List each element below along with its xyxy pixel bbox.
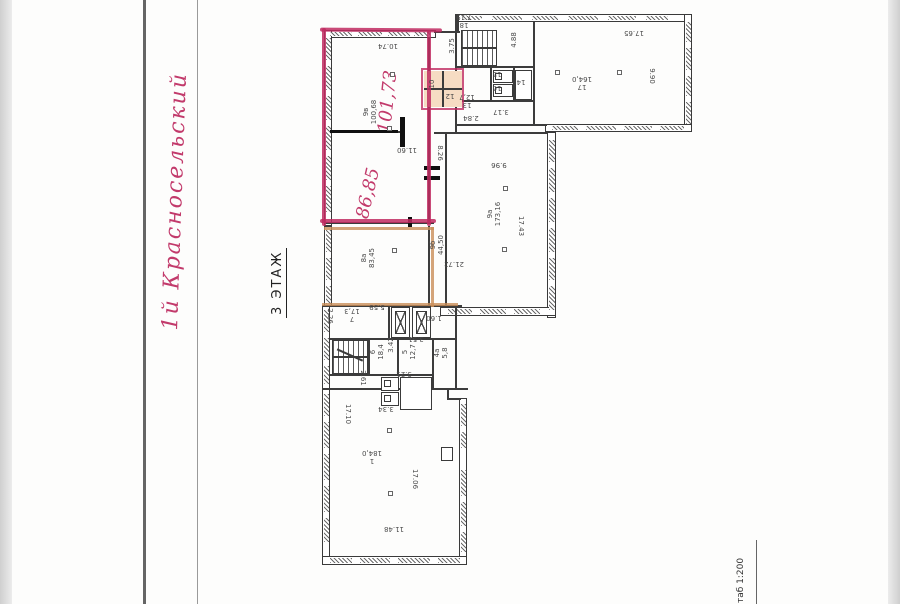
column-mark (387, 428, 392, 433)
window-seg (360, 558, 390, 563)
room-label-9v: 9в 100,68 (362, 100, 378, 125)
column-mark (617, 70, 622, 75)
window-seg (532, 16, 558, 20)
dim-label: 10.74 (378, 42, 398, 50)
window-seg (326, 230, 331, 252)
window-seg (480, 309, 506, 314)
window-seg (552, 126, 578, 130)
column-mark (390, 72, 395, 77)
interior-wall (533, 22, 535, 124)
window-seg (686, 22, 691, 42)
interior-wall (434, 132, 547, 134)
window-seg (514, 309, 540, 314)
red-trace-loop (421, 68, 464, 110)
dim-label: 17.06 (411, 469, 419, 489)
interior-wall (397, 340, 399, 374)
window-seg (586, 126, 616, 130)
room-label-15: 15 (493, 70, 502, 78)
window-seg (358, 32, 382, 36)
dim-label: 3.42 (387, 337, 395, 353)
window-seg (461, 404, 466, 426)
dim-label: 3.17 (493, 108, 509, 116)
dim-label: 5.59 (369, 303, 385, 311)
interior-wall (447, 398, 461, 400)
window-seg (686, 76, 691, 96)
room-label-9a: 9а 173,16 (486, 202, 502, 227)
orange-trace-top (324, 227, 434, 230)
red-trace-top (320, 28, 442, 33)
column-mark (555, 70, 560, 75)
interior-wall (445, 132, 447, 307)
window-seg (549, 168, 555, 192)
room-label-5: 5 12,7 (401, 344, 417, 360)
wc-fixture (384, 395, 391, 402)
window-seg (461, 470, 466, 496)
dim-label: 8.26 (436, 145, 444, 161)
window-seg (624, 126, 652, 130)
window-seg (388, 32, 410, 36)
window-seg (330, 558, 352, 563)
window-seg (398, 558, 430, 563)
window-seg (549, 258, 555, 280)
window-seg (326, 286, 331, 304)
window-seg (686, 102, 691, 124)
window-seg (461, 502, 466, 526)
dim-label: 3.51 (408, 335, 424, 343)
window-seg (549, 228, 555, 252)
room-label-12: 12 (446, 92, 455, 100)
red-trace-left (322, 28, 326, 226)
column-mark (502, 247, 507, 252)
room-label-4a: 4а 5,8 (433, 347, 449, 358)
window-seg (324, 518, 329, 542)
dim-label: 11.60 (397, 146, 417, 154)
elevator-shaft-1 (391, 307, 410, 338)
window-seg (326, 66, 331, 90)
dim-label: 9.90 (648, 68, 656, 84)
room-label-16: 16 (493, 84, 502, 92)
window-seg (324, 394, 329, 416)
stair-rail (461, 47, 497, 49)
dim-label: 2.84 (463, 114, 479, 122)
dim-label: 3.34 (378, 405, 394, 413)
dim-label: 4.88 (510, 32, 518, 48)
closet-box (441, 447, 453, 461)
dim-label: 17.10 (344, 404, 352, 424)
floor-plan: 9в 100,68 9а 173,16 9б 44,50 8а 83,45 7 … (0, 0, 900, 604)
window-seg (448, 309, 472, 314)
window-seg (461, 532, 466, 552)
window-seg (686, 48, 691, 70)
interior-wall (388, 306, 390, 338)
dim-label: 1.60 (426, 314, 442, 322)
window-seg (492, 16, 522, 20)
wc-fixture (384, 380, 391, 387)
column-mark (387, 126, 392, 131)
scanned-floorplan-page: { "annotations": { "street_handwritten":… (0, 0, 900, 604)
room-label-10: 10 (428, 80, 436, 89)
window-seg (549, 198, 555, 222)
window-seg (326, 156, 331, 180)
window-seg (660, 126, 684, 130)
dim-label: 9.96 (491, 161, 507, 169)
stair-rail (332, 356, 368, 358)
window-seg (324, 366, 329, 384)
room-label-18: 18 7,19 (456, 13, 472, 29)
dim-label: 11.48 (384, 525, 404, 533)
interior-wall (455, 124, 547, 126)
window-seg (324, 422, 329, 448)
interior-wall (330, 374, 432, 376)
window-seg (568, 16, 598, 20)
window-seg (461, 432, 466, 448)
orange-trace-bottom (322, 303, 458, 306)
window-seg (326, 38, 331, 60)
door-jamb (400, 117, 405, 147)
small-room-box (400, 377, 432, 410)
column-mark (392, 248, 397, 253)
window-seg (646, 16, 668, 20)
column-mark (388, 491, 393, 496)
room-label-9b: 9б 44,50 (429, 235, 445, 255)
window-seg (549, 286, 555, 310)
elevator-x-icon (395, 311, 406, 334)
dim-label: 2.26 (326, 308, 334, 324)
window-seg (438, 558, 460, 563)
room-label-6: 6 18,4 (369, 344, 385, 360)
window-seg (608, 16, 636, 20)
window-seg (326, 258, 331, 280)
window-seg (324, 338, 329, 360)
interior-wall (455, 66, 533, 68)
room-label-14: 14 (517, 78, 526, 86)
dim-label: 3.21 (396, 370, 412, 378)
interior-wall (455, 305, 457, 390)
dim-label: 3.75 (448, 38, 456, 54)
red-trace-bottom (320, 219, 436, 223)
room-label-17: 17 164,0 (572, 75, 592, 91)
room-label-1: 1 184,0 (362, 449, 382, 465)
room-label-13: 13 12,7 (459, 93, 475, 109)
dim-label: 2.61 (359, 370, 367, 386)
red-trace-right (427, 30, 431, 226)
window-seg (326, 186, 331, 212)
interior-wall (432, 338, 434, 388)
window-seg (324, 454, 329, 480)
window-seg (549, 140, 555, 162)
room-label-8a: 8а 83,45 (360, 248, 376, 268)
column-mark (503, 186, 508, 191)
dim-label: 21.72 (444, 260, 464, 268)
window-seg (324, 486, 329, 512)
dim-label: 17.65 (624, 29, 644, 37)
window-seg (326, 96, 331, 120)
room-label-7: 7 17,3 (344, 307, 360, 323)
dim-label: 17.43 (517, 216, 525, 236)
window-seg (330, 32, 352, 36)
elevator-shaft-2 (412, 307, 431, 338)
